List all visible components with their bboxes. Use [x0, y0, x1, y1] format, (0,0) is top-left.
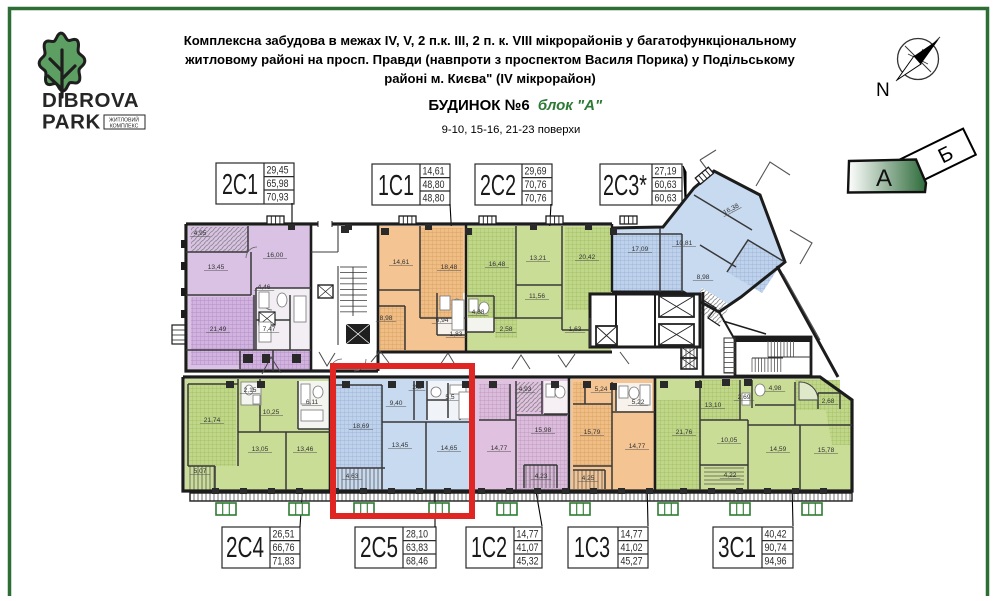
svg-text:28,10: 28,10: [406, 529, 428, 541]
svg-text:1C1: 1C1: [378, 170, 414, 202]
svg-text:90,74: 90,74: [765, 542, 787, 554]
svg-text:18,69: 18,69: [353, 423, 370, 430]
svg-text:4,46: 4,46: [258, 284, 271, 291]
svg-text:63,83: 63,83: [406, 542, 428, 554]
svg-text:4,25: 4,25: [582, 475, 595, 482]
svg-text:N: N: [876, 80, 890, 101]
svg-text:Комплексна забудова в межах IV: Комплексна забудова в межах IV, V, 2 п.к…: [184, 33, 797, 48]
svg-text:1,63: 1,63: [569, 326, 582, 333]
svg-text:29,45: 29,45: [267, 165, 289, 177]
svg-text:20,42: 20,42: [579, 254, 596, 261]
svg-text:27,19: 27,19: [655, 166, 677, 178]
svg-text:2C5: 2C5: [360, 532, 398, 564]
svg-text:60,63: 60,63: [655, 193, 677, 205]
svg-text:БУДИНОК №6: БУДИНОК №6: [428, 97, 529, 114]
svg-text:16,00: 16,00: [267, 252, 284, 259]
svg-text:16,48: 16,48: [489, 261, 506, 268]
svg-text:5,24: 5,24: [595, 386, 608, 393]
svg-text:17,09: 17,09: [632, 246, 649, 253]
svg-text:66,76: 66,76: [273, 542, 295, 554]
svg-text:5,5: 5,5: [445, 394, 454, 401]
svg-text:14,77: 14,77: [629, 443, 646, 450]
svg-text:5,07: 5,07: [194, 468, 207, 475]
svg-text:14,61: 14,61: [393, 259, 410, 266]
svg-text:10,25: 10,25: [263, 409, 280, 416]
svg-text:6,94: 6,94: [436, 317, 449, 324]
svg-text:10,81: 10,81: [676, 240, 693, 247]
svg-text:18,48: 18,48: [441, 264, 458, 271]
svg-text:65,98: 65,98: [267, 178, 289, 190]
svg-text:70,76: 70,76: [525, 193, 547, 205]
svg-text:8,98: 8,98: [697, 274, 710, 281]
svg-text:1,83: 1,83: [450, 331, 463, 338]
svg-text:КОМПЛЕКС: КОМПЛЕКС: [110, 124, 139, 130]
svg-text:4,93: 4,93: [519, 386, 532, 393]
svg-text:40,42: 40,42: [765, 529, 787, 541]
svg-text:45,32: 45,32: [517, 556, 539, 568]
svg-text:70,93: 70,93: [267, 192, 289, 204]
svg-text:2,15: 2,15: [244, 387, 257, 394]
svg-text:14,65: 14,65: [441, 445, 458, 452]
svg-text:48,80: 48,80: [423, 193, 445, 205]
svg-text:94,96: 94,96: [765, 556, 787, 568]
svg-text:13,45: 13,45: [208, 264, 225, 271]
svg-text:ЖИТЛОВИЙ: ЖИТЛОВИЙ: [109, 116, 139, 124]
svg-text:45,27: 45,27: [621, 556, 643, 568]
svg-text:48,80: 48,80: [423, 179, 445, 191]
svg-text:13,10: 13,10: [705, 402, 722, 409]
svg-text:4,88: 4,88: [472, 309, 485, 316]
svg-text:PARK: PARK: [42, 111, 101, 134]
svg-text:9-10, 15-16, 21-23 поверхи: 9-10, 15-16, 21-23 поверхи: [442, 124, 581, 136]
svg-text:А: А: [876, 165, 892, 192]
svg-text:5,22: 5,22: [632, 399, 645, 406]
svg-text:2C3*: 2C3*: [603, 170, 647, 202]
svg-text:2,58: 2,58: [500, 326, 513, 333]
svg-text:2C4: 2C4: [226, 532, 264, 564]
svg-text:11,56: 11,56: [529, 293, 545, 300]
svg-text:70,76: 70,76: [525, 179, 547, 191]
svg-text:4,63: 4,63: [346, 473, 359, 480]
svg-text:житловому районі на просп. Пра: житловому районі на просп. Правди (навпр…: [184, 52, 795, 67]
svg-text:1C3: 1C3: [574, 532, 610, 564]
svg-text:9,40: 9,40: [390, 400, 403, 407]
svg-text:14,59: 14,59: [770, 446, 787, 453]
svg-text:21,76: 21,76: [676, 429, 693, 436]
svg-text:14,77: 14,77: [621, 529, 643, 541]
svg-text:блок "А": блок "А": [538, 97, 603, 114]
svg-text:13,46: 13,46: [297, 446, 314, 453]
svg-text:60,63: 60,63: [655, 179, 677, 191]
svg-text:3C1: 3C1: [718, 532, 756, 564]
svg-text:4,22: 4,22: [724, 472, 737, 479]
svg-text:10,05: 10,05: [721, 437, 738, 444]
svg-text:13,45: 13,45: [392, 442, 409, 449]
svg-text:4,98: 4,98: [769, 385, 782, 392]
svg-text:4,95: 4,95: [194, 230, 207, 237]
svg-text:14,77: 14,77: [517, 529, 539, 541]
svg-text:7,47: 7,47: [263, 326, 276, 333]
svg-text:районі м. Києва" (IV мікрорайо: районі м. Києва" (IV мікрорайон): [384, 71, 596, 86]
svg-text:4,23: 4,23: [535, 473, 548, 480]
svg-text:21,49: 21,49: [210, 326, 227, 333]
svg-text:DIBROVA: DIBROVA: [42, 89, 139, 112]
svg-text:29,69: 29,69: [525, 166, 547, 178]
svg-text:14,61: 14,61: [423, 166, 445, 178]
svg-text:41,07: 41,07: [517, 542, 539, 554]
svg-text:26,51: 26,51: [273, 529, 295, 541]
svg-text:15,98: 15,98: [535, 427, 552, 434]
svg-text:2,68: 2,68: [822, 398, 835, 405]
svg-text:2,2: 2,2: [412, 384, 421, 391]
svg-text:8,98: 8,98: [380, 315, 393, 322]
svg-text:1C2: 1C2: [471, 532, 507, 564]
svg-text:21,74: 21,74: [204, 417, 221, 424]
svg-text:15,79: 15,79: [584, 429, 601, 436]
svg-text:15,78: 15,78: [818, 447, 835, 454]
svg-text:2,69: 2,69: [738, 394, 751, 401]
svg-text:41,02: 41,02: [621, 542, 643, 554]
svg-text:2C1: 2C1: [222, 169, 258, 201]
svg-text:6,11: 6,11: [306, 399, 319, 406]
svg-text:14,77: 14,77: [491, 445, 508, 452]
svg-text:71,83: 71,83: [273, 556, 295, 568]
svg-text:13,21: 13,21: [530, 255, 547, 262]
svg-text:13,05: 13,05: [252, 446, 269, 453]
svg-text:2C2: 2C2: [480, 170, 516, 202]
svg-text:68,46: 68,46: [406, 556, 428, 568]
